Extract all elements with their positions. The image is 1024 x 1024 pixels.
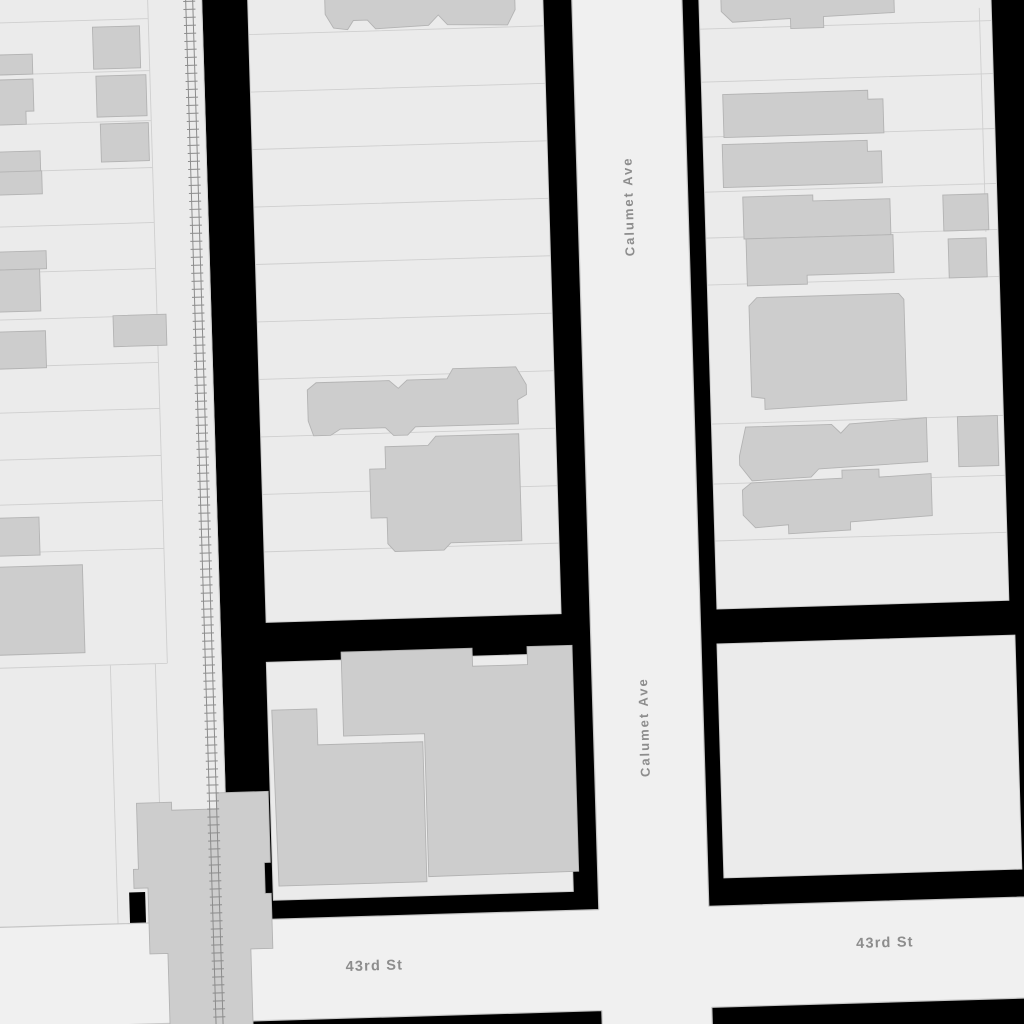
building-footprint <box>96 75 147 117</box>
street-label-43rd-st-east: 43rd St <box>856 934 914 952</box>
building-footprint <box>749 293 907 410</box>
building-footprint <box>0 251 47 271</box>
building-footprint <box>100 123 149 162</box>
building-footprint <box>113 314 167 347</box>
city-block-east-south <box>717 635 1022 878</box>
city-block-center-south <box>266 645 579 900</box>
building-footprint <box>0 54 33 76</box>
city-block-east-north <box>696 0 1008 609</box>
alley-gap <box>129 892 146 923</box>
railroad-corridor-block <box>0 0 229 929</box>
building-footprint <box>723 90 884 138</box>
building-footprint <box>0 517 40 557</box>
building-footprint <box>0 331 47 370</box>
building-footprint <box>948 238 987 278</box>
building-footprint <box>0 269 41 313</box>
city-block-center-north <box>246 0 561 622</box>
parcel-area <box>717 635 1022 878</box>
building-footprint <box>0 171 42 196</box>
street-label-calumet-ave-south: Calumet Ave <box>635 677 653 777</box>
building-footprint <box>92 26 140 69</box>
building-footprint <box>943 194 989 231</box>
building-footprint <box>957 416 998 467</box>
building-footprint <box>722 140 882 188</box>
building-footprint <box>0 565 85 656</box>
street-label-43rd-st-west: 43rd St <box>345 957 403 975</box>
street-label-calumet-ave-north: Calumet Ave <box>620 156 638 256</box>
building-footprint <box>369 434 522 552</box>
map-canvas[interactable]: Calumet Ave Calumet Ave 43rd St 43rd St <box>0 0 1024 1024</box>
